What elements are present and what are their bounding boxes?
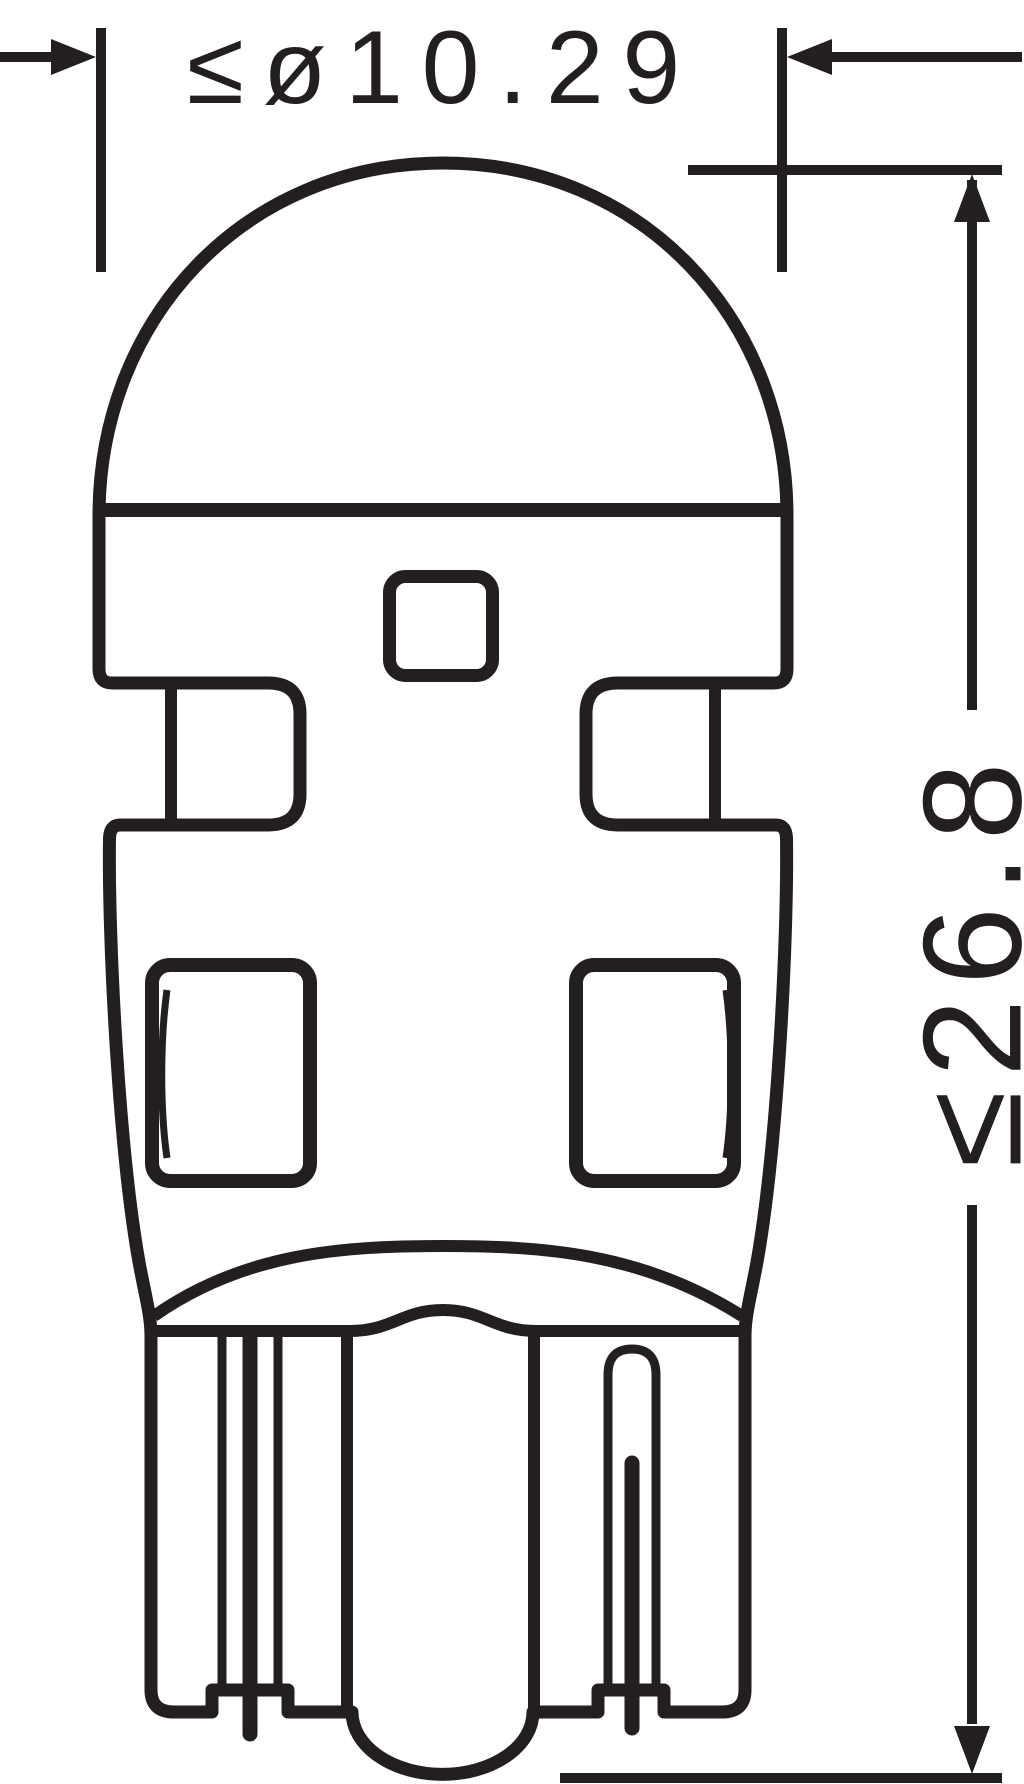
center-window (390, 577, 493, 676)
dimension-arrowhead-down (954, 1726, 990, 1774)
diameter-dimension-label: ≤ø10.29 (187, 10, 699, 126)
dimension-arrowhead-right (787, 39, 832, 75)
led-chip-highlight-right (726, 990, 731, 1158)
wedge-top-edge (152, 1310, 744, 1331)
led-wedge-bulb-dimension-diagram: ≤ø10.29 ≤26.8 (0, 0, 1024, 1784)
led-chip-left (152, 965, 310, 1181)
bulb-drawing (99, 163, 787, 1774)
technical-drawing-page: ≤ø10.29 ≤26.8 (0, 0, 1024, 1784)
diameter-dimension: ≤ø10.29 (0, 10, 1022, 272)
dimension-arrowhead-left (51, 39, 96, 75)
led-chip-right (576, 965, 734, 1181)
dimension-arrowhead-up (954, 174, 990, 222)
led-chip-highlight-left (162, 990, 167, 1158)
length-dimension-label: ≤26.8 (894, 748, 1024, 1167)
